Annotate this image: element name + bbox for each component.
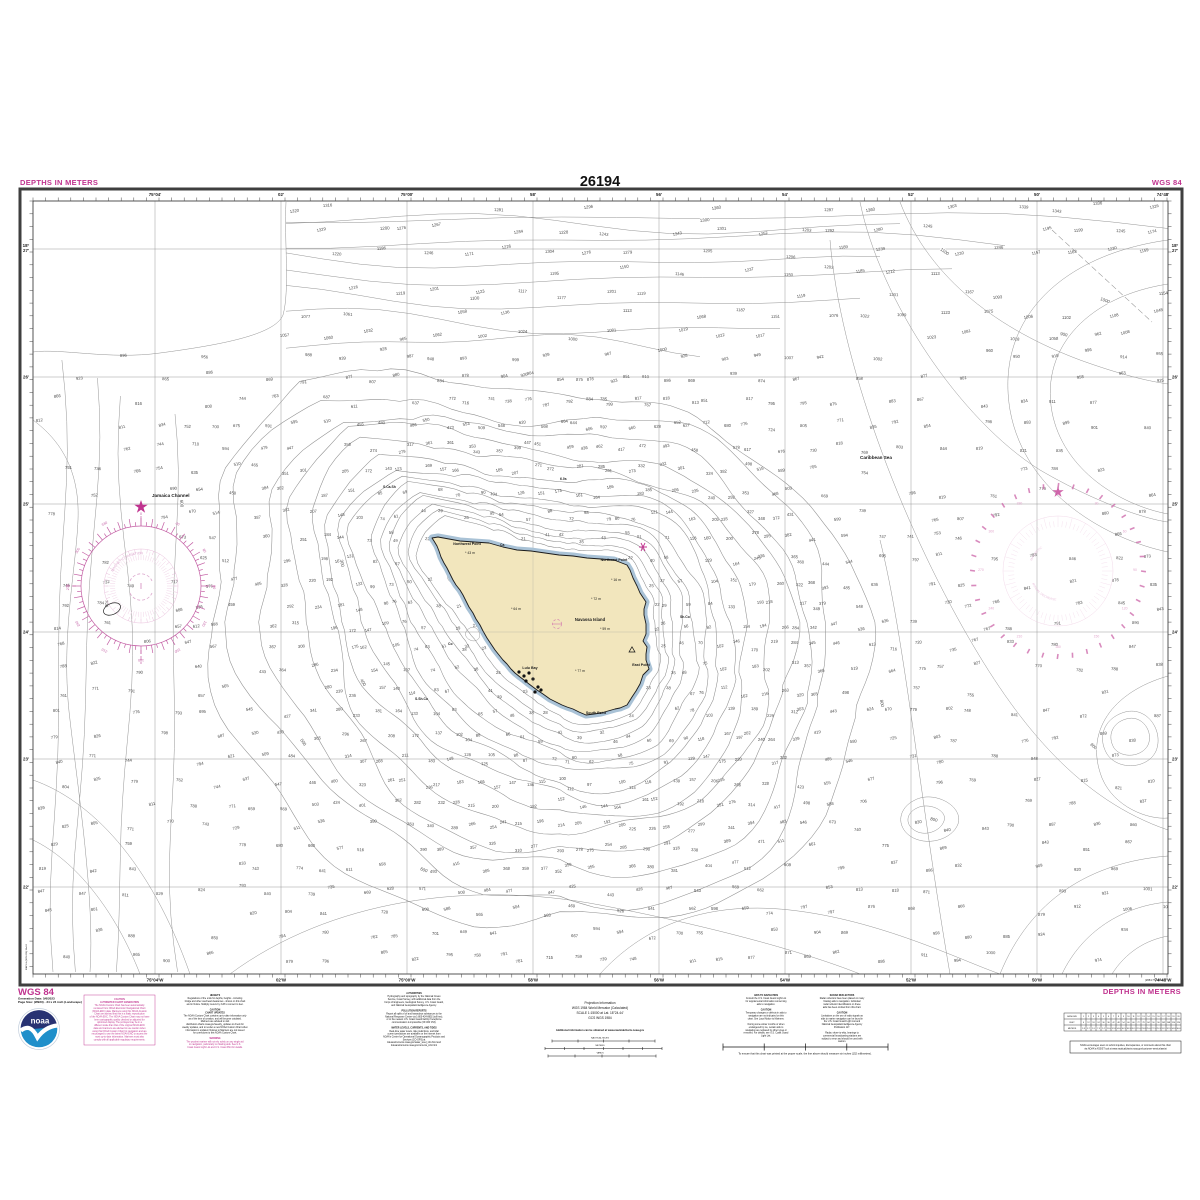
svg-text:296: 296	[342, 731, 350, 737]
svg-text:788: 788	[1005, 626, 1013, 631]
svg-text:East Point: East Point	[632, 663, 650, 667]
svg-text:Radar reflectors have been pla: Radar reflectors have been placed on man…	[820, 997, 865, 1000]
svg-text:792: 792	[62, 603, 70, 608]
svg-text:738: 738	[505, 398, 513, 404]
svg-text:1243: 1243	[599, 231, 609, 237]
svg-text:184: 184	[324, 532, 332, 537]
svg-text:806: 806	[144, 638, 152, 644]
svg-text:365: 365	[314, 735, 322, 741]
svg-text:1123: 1123	[941, 310, 951, 315]
svg-text:240: 240	[708, 495, 716, 500]
svg-text:588: 588	[211, 621, 219, 627]
svg-text:167: 167	[724, 731, 732, 736]
svg-text:97: 97	[587, 782, 592, 787]
svg-text:901: 901	[1091, 425, 1099, 430]
svg-text:657: 657	[175, 623, 183, 629]
svg-text:151: 151	[730, 577, 738, 583]
svg-text:via NOAA's ASSIST tool at www.: via NOAA's ASSIST tool at www.nauticalch…	[1084, 1048, 1167, 1051]
svg-text:869: 869	[688, 378, 696, 383]
svg-text:700: 700	[676, 930, 684, 936]
svg-text:793: 793	[175, 710, 183, 716]
svg-text:771: 771	[89, 753, 97, 758]
svg-text:1245: 1245	[923, 223, 933, 229]
svg-text:885: 885	[1003, 934, 1011, 939]
svg-text:157: 157	[493, 784, 501, 790]
svg-text:26: 26	[464, 515, 469, 520]
svg-text:1186: 1186	[377, 245, 387, 251]
svg-text:26': 26'	[23, 375, 29, 380]
svg-text:357: 357	[804, 663, 812, 668]
svg-text:485: 485	[824, 756, 832, 762]
svg-text:* 43 m: * 43 m	[465, 551, 475, 555]
svg-text:676: 676	[778, 448, 786, 454]
svg-text:368: 368	[808, 580, 816, 585]
svg-text:791: 791	[128, 688, 136, 694]
svg-text:CAUTION: CAUTION	[210, 1008, 221, 1011]
svg-text:458: 458	[229, 490, 237, 496]
svg-text:Regulations of the units for d: Regulations of the units for depths, hei…	[188, 997, 243, 1000]
svg-text:129: 129	[688, 756, 696, 761]
svg-text:0: 0	[140, 512, 142, 516]
svg-text:(NOAA ENC) data. Mariners usin: (NOAA ENC) data. Mariners using this NOA…	[92, 1010, 147, 1013]
svg-text:292: 292	[287, 603, 295, 609]
svg-text:841: 841	[320, 911, 328, 916]
svg-text:399: 399	[514, 445, 522, 450]
svg-text:879: 879	[286, 959, 294, 964]
svg-text:771: 771	[127, 826, 135, 832]
svg-text:115: 115	[539, 778, 547, 784]
svg-text:637: 637	[412, 400, 420, 406]
svg-text:228: 228	[453, 799, 461, 805]
svg-text:1113: 1113	[623, 308, 632, 313]
svg-text:200: 200	[726, 536, 734, 541]
svg-text:251: 251	[300, 537, 308, 542]
svg-text:280: 280	[336, 706, 344, 712]
svg-text:741: 741	[907, 534, 915, 539]
svg-text:878: 878	[462, 373, 470, 378]
svg-text:292: 292	[728, 494, 736, 500]
svg-text:838: 838	[1156, 662, 1164, 667]
svg-text:54: 54	[499, 512, 505, 517]
svg-text:144: 144	[337, 534, 345, 540]
svg-text:804: 804	[62, 784, 70, 790]
svg-text:860: 860	[1130, 822, 1138, 827]
svg-text:234: 234	[331, 667, 339, 673]
svg-text:1287: 1287	[824, 207, 834, 212]
svg-text:910: 910	[642, 374, 650, 379]
svg-text:956: 956	[201, 354, 209, 360]
svg-text:739: 739	[859, 508, 867, 513]
svg-text:46: 46	[613, 739, 618, 744]
svg-text:869: 869	[266, 376, 274, 382]
svg-text:1022: 1022	[860, 313, 870, 319]
svg-text:98: 98	[584, 510, 589, 515]
svg-text:270: 270	[978, 568, 984, 572]
svg-text:202: 202	[743, 730, 751, 736]
svg-text:Jamaica Channel: Jamaica Channel	[152, 493, 190, 498]
svg-text:60: 60	[1123, 530, 1127, 534]
svg-text:845: 845	[45, 907, 53, 913]
svg-text:843: 843	[1042, 839, 1050, 845]
svg-text:139: 139	[728, 706, 736, 711]
svg-text:644: 644	[570, 420, 578, 425]
svg-text:Projection Information: Projection Information	[584, 1001, 615, 1005]
svg-text:516: 516	[357, 847, 365, 852]
svg-text:791: 791	[1054, 620, 1062, 626]
svg-text:data and mariners are advised: data and mariners are advised to use cau…	[93, 1027, 146, 1030]
svg-text:739: 739	[599, 956, 607, 962]
svg-text:960: 960	[986, 348, 994, 353]
svg-text:326: 326	[489, 840, 497, 846]
svg-text:most up-to-date information. M: most up-to-date information. Mariners mu…	[95, 1035, 144, 1038]
svg-text:565: 565	[476, 912, 484, 917]
svg-text:CHART UPDATES: CHART UPDATES	[205, 1011, 225, 1014]
svg-text:360: 360	[797, 559, 805, 565]
svg-text:886: 886	[664, 378, 672, 383]
svg-text:343: 343	[473, 449, 481, 455]
svg-text:612: 612	[192, 623, 200, 629]
svg-text:as of the time of creation, an: as of the time of creation, and will bec…	[188, 1017, 241, 1020]
svg-text:848: 848	[1031, 756, 1039, 761]
svg-text:673: 673	[829, 819, 837, 825]
svg-text:348: 348	[813, 606, 821, 611]
svg-text:164: 164	[593, 495, 601, 500]
svg-text:594: 594	[593, 926, 601, 931]
svg-text:641: 641	[319, 868, 327, 873]
svg-text:207: 207	[310, 508, 318, 514]
svg-text:446: 446	[309, 780, 317, 785]
svg-text:current predictions are availa: current predictions are available on the…	[387, 1033, 440, 1036]
svg-text:794: 794	[161, 514, 169, 520]
svg-text:1201: 1201	[889, 292, 899, 297]
svg-text:752: 752	[184, 424, 192, 429]
svg-text:710: 710	[192, 441, 200, 447]
svg-text:Real-time water levels, tide p: Real-time water levels, tide predictions…	[389, 1030, 439, 1033]
svg-text:869: 869	[1100, 730, 1108, 736]
svg-text:812: 812	[36, 417, 44, 423]
svg-text:1113: 1113	[931, 271, 940, 276]
svg-text:226: 226	[649, 826, 657, 831]
svg-text:846: 846	[1069, 556, 1077, 561]
svg-text:939: 939	[730, 371, 738, 376]
svg-text:104: 104	[490, 491, 498, 497]
svg-text:1077: 1077	[301, 314, 311, 319]
svg-text:779: 779	[131, 779, 139, 784]
svg-text:220: 220	[735, 756, 743, 762]
svg-text:Coast Guard Light List and U.S: Coast Guard Light List and U.S. Coast Pi…	[187, 1046, 243, 1049]
svg-text:169: 169	[425, 463, 433, 468]
svg-text:746: 746	[955, 535, 963, 541]
svg-text:451: 451	[534, 441, 542, 447]
svg-text:52': 52'	[908, 192, 914, 197]
svg-text:1177: 1177	[557, 295, 567, 300]
svg-text:802: 802	[946, 705, 954, 711]
svg-text:720: 720	[915, 639, 923, 645]
svg-text:75°00'W: 75°00'W	[399, 978, 417, 983]
svg-text:240: 240	[758, 737, 766, 742]
svg-text:During some winter months or w: During some winter months or when	[748, 1023, 785, 1026]
svg-text:863: 863	[804, 954, 812, 959]
svg-text:886: 886	[878, 958, 886, 964]
svg-text:594: 594	[841, 533, 849, 538]
svg-text:866: 866	[958, 903, 966, 909]
svg-text:845: 845	[1118, 600, 1126, 606]
svg-text:1203: 1203	[802, 227, 812, 233]
svg-text:368: 368	[503, 866, 511, 871]
svg-text:843: 843	[982, 826, 990, 831]
svg-text:883: 883	[1024, 419, 1032, 425]
svg-text:49: 49	[393, 538, 398, 543]
svg-text:600: 600	[179, 500, 185, 508]
svg-text:617: 617	[744, 447, 752, 452]
svg-text:S.Ca.Sh: S.Ca.Sh	[383, 485, 396, 489]
svg-text:779: 779	[50, 734, 58, 740]
svg-text:floating aids to navigation. I: floating aids to navigation. Individual	[824, 1000, 861, 1003]
svg-text:SCALE 1:15000 at Lat. 18°24.44: SCALE 1:15000 at Lat. 18°24.44'	[577, 1011, 624, 1015]
svg-text:301: 301	[300, 467, 308, 473]
svg-text:1304: 1304	[545, 249, 555, 254]
svg-text:1246: 1246	[424, 250, 434, 255]
svg-text:removed. For details, see U.S.: removed. For details, see U.S. Coast Gua…	[744, 1032, 789, 1035]
svg-text:139: 139	[673, 778, 681, 784]
svg-text:Publication 117.: Publication 117.	[834, 1026, 851, 1029]
svg-text:788: 788	[59, 663, 67, 669]
svg-text:803: 803	[896, 444, 904, 450]
svg-text:447: 447	[548, 889, 556, 895]
svg-text:875: 875	[576, 377, 584, 382]
svg-text:189: 189	[751, 706, 759, 711]
svg-text:341: 341	[310, 707, 318, 713]
svg-text:825: 825	[958, 582, 966, 588]
svg-text:299: 299	[698, 821, 706, 827]
svg-text:774: 774	[766, 910, 774, 916]
svg-text:886: 886	[206, 369, 214, 375]
svg-text:779: 779	[910, 707, 918, 712]
svg-text:73: 73	[367, 538, 373, 543]
svg-text:662: 662	[757, 887, 765, 893]
svg-text:157: 157	[379, 685, 387, 690]
svg-text:290: 290	[643, 846, 651, 852]
svg-text:670: 670	[884, 706, 892, 712]
svg-text:498: 498	[842, 690, 850, 695]
svg-text:1219: 1219	[396, 290, 406, 296]
svg-text:100: 100	[559, 776, 567, 781]
svg-text:232: 232	[438, 800, 446, 805]
svg-text:YARDS: YARDS	[596, 1052, 604, 1055]
svg-text:54': 54'	[782, 192, 788, 197]
svg-text:215: 215	[515, 821, 523, 826]
svg-text:Temporary changes or defects i: Temporary changes or defects in aids to	[746, 1012, 787, 1015]
svg-text:775: 775	[919, 666, 927, 671]
svg-text:aids to marine navigation can: aids to marine navigation can be found i…	[821, 1017, 864, 1020]
svg-text:404: 404	[705, 863, 713, 868]
svg-text:161: 161	[642, 797, 650, 802]
svg-text:818: 818	[892, 887, 900, 893]
svg-text:424: 424	[333, 800, 341, 805]
svg-text:680: 680	[724, 423, 732, 428]
svg-text:1292: 1292	[825, 228, 835, 233]
svg-text:955: 955	[1156, 351, 1164, 356]
svg-text:* 59 m: * 59 m	[600, 627, 610, 631]
svg-text:868: 868	[908, 906, 916, 911]
svg-text:72: 72	[552, 756, 558, 761]
svg-text:883: 883	[888, 398, 896, 404]
svg-text:107: 107	[403, 667, 411, 673]
svg-text:307: 307	[360, 758, 368, 764]
svg-text:198: 198	[321, 556, 329, 561]
svg-text:423: 423	[797, 784, 805, 790]
svg-text:625: 625	[200, 555, 208, 560]
svg-text:AUTOMATED CHART GENERATION: AUTOMATED CHART GENERATION	[100, 1001, 139, 1004]
svg-text:Consult the U.S. Coast Guard L: Consult the U.S. Coast Guard Light List	[746, 997, 787, 1000]
svg-text:1195: 1195	[550, 271, 560, 276]
svg-text:aids has been omitted from thi: aids has been omitted from this chart.	[823, 1006, 862, 1009]
svg-text:819: 819	[976, 445, 984, 451]
svg-text:744: 744	[239, 396, 247, 401]
svg-text:187: 187	[321, 493, 329, 498]
svg-text:443: 443	[607, 892, 615, 897]
svg-text:669: 669	[364, 889, 372, 895]
svg-text:314: 314	[748, 802, 756, 807]
svg-text:1057: 1057	[280, 332, 290, 338]
svg-text:150: 150	[1094, 635, 1100, 639]
svg-text:83: 83	[452, 707, 458, 712]
svg-text:121: 121	[650, 509, 658, 515]
svg-text:254: 254	[489, 824, 497, 830]
svg-text:865: 865	[133, 952, 141, 957]
svg-text:1119: 1119	[637, 291, 647, 296]
svg-text:628: 628	[387, 885, 395, 891]
svg-text:328: 328	[281, 582, 289, 588]
svg-text:790: 790	[1007, 822, 1015, 828]
svg-text:753: 753	[934, 530, 942, 536]
svg-text:57: 57	[526, 517, 532, 522]
svg-text:METERS: METERS	[1068, 1028, 1077, 1030]
svg-text:24': 24'	[23, 630, 29, 635]
svg-text:CAUTION: CAUTION	[837, 1011, 848, 1014]
svg-text:877: 877	[748, 955, 756, 960]
svg-text:1001: 1001	[1143, 886, 1153, 892]
svg-text:798: 798	[161, 730, 169, 735]
svg-text:512: 512	[744, 866, 752, 871]
svg-text:804: 804	[285, 909, 293, 914]
svg-text:795: 795	[446, 952, 454, 957]
svg-text:390: 390	[420, 847, 428, 852]
svg-text:147: 147	[509, 780, 517, 785]
svg-text:547: 547	[209, 535, 217, 540]
svg-text:284: 284	[791, 640, 799, 645]
svg-text:465: 465	[251, 462, 259, 468]
svg-text:911: 911	[1049, 399, 1056, 404]
svg-text:Light List.: Light List.	[761, 1034, 771, 1037]
svg-text:1002: 1002	[873, 356, 883, 362]
svg-text:communication is impossible (3: communication is impossible (33 CFR 153)…	[392, 1021, 437, 1024]
svg-text:weekly updates, and to render: weekly updates, and to render a new NOAA…	[182, 1026, 248, 1029]
svg-text:341: 341	[728, 825, 736, 830]
svg-text:841: 841	[1011, 712, 1019, 717]
svg-text:795: 795	[800, 400, 808, 406]
svg-text:352: 352	[555, 868, 563, 874]
svg-text:25': 25'	[1172, 502, 1178, 507]
svg-text:navigation are replaced by oth: navigation are replaced by other types o…	[745, 1029, 787, 1032]
svg-text:425: 425	[569, 883, 577, 889]
svg-text:813: 813	[856, 886, 864, 892]
svg-text:Ca: Ca	[500, 543, 504, 547]
svg-text:161: 161	[575, 492, 583, 498]
svg-text:664: 664	[561, 418, 569, 424]
svg-text:340: 340	[427, 823, 435, 828]
svg-text:CAUTION: CAUTION	[114, 998, 125, 1001]
svg-text:808: 808	[205, 403, 213, 409]
svg-text:620: 620	[519, 419, 527, 425]
svg-text:164: 164	[395, 708, 403, 714]
svg-text:611: 611	[346, 867, 354, 872]
svg-text:1316: 1316	[323, 202, 333, 208]
svg-text:562: 562	[689, 905, 697, 911]
svg-text:50'W: 50'W	[1032, 978, 1043, 983]
svg-text:744: 744	[156, 441, 164, 447]
svg-text:367: 367	[269, 644, 277, 650]
svg-text:636: 636	[871, 582, 879, 587]
svg-text:924: 924	[1038, 931, 1046, 937]
svg-text:473: 473	[447, 425, 455, 430]
svg-text:387: 387	[254, 514, 262, 520]
svg-text:887: 887	[1049, 821, 1057, 827]
svg-text:109: 109	[382, 620, 390, 626]
svg-text:472: 472	[639, 443, 647, 448]
svg-text:324: 324	[706, 471, 714, 476]
svg-text:900: 900	[163, 958, 171, 963]
svg-text:351: 351	[282, 471, 290, 476]
svg-text:FEET: FEET	[1069, 1022, 1075, 1024]
svg-text:73: 73	[389, 582, 395, 587]
svg-text:896: 896	[120, 353, 128, 358]
svg-text:854: 854	[557, 376, 565, 382]
svg-text:Chart are advised that this is: Chart are advised that this is a static …	[94, 1013, 145, 1016]
svg-text:751: 751	[65, 465, 73, 470]
svg-text:229: 229	[767, 713, 775, 718]
svg-text:133: 133	[728, 604, 736, 609]
svg-text:635: 635	[191, 470, 199, 475]
svg-text:102: 102	[456, 732, 464, 737]
svg-text:WGS 1984 World Mercator (Calcu: WGS 1984 World Mercator (Calculated)	[572, 1006, 628, 1010]
svg-text:1189: 1189	[839, 244, 849, 250]
svg-text:757: 757	[937, 664, 945, 669]
svg-text:1201: 1201	[607, 289, 617, 294]
svg-text:RADAR REFLECTORS: RADAR REFLECTORS	[830, 994, 855, 997]
svg-text:778: 778	[48, 511, 56, 516]
svg-text:217: 217	[433, 782, 441, 787]
svg-text:radar reflector identification: radar reflector identification on these	[823, 1003, 861, 1006]
svg-text:878: 878	[586, 376, 594, 382]
svg-text:911: 911	[921, 952, 929, 958]
svg-text:1279: 1279	[623, 249, 633, 255]
svg-text:796: 796	[322, 958, 330, 964]
svg-text:792: 792	[566, 398, 574, 404]
svg-text:810: 810	[1147, 778, 1155, 784]
svg-text:02': 02'	[278, 192, 284, 197]
svg-text:1246: 1246	[994, 245, 1004, 250]
svg-text:795: 795	[768, 401, 776, 406]
svg-text:Limitations on the use of radi: Limitations on the use of radio signals …	[821, 1015, 863, 1018]
svg-text:24: 24	[629, 713, 635, 718]
svg-text:302: 302	[395, 797, 403, 803]
svg-text:Lulu Bay: Lulu Bay	[522, 666, 537, 670]
svg-text:362: 362	[269, 623, 277, 629]
svg-text:tidesandcurrents.noaa.gov/wate: tidesandcurrents.noaa.gov/water_level_in…	[387, 1041, 441, 1044]
svg-text:1000: 1000	[986, 950, 996, 955]
svg-text:comply with all applicable reg: comply with all applicable regulatory re…	[94, 1038, 146, 1041]
